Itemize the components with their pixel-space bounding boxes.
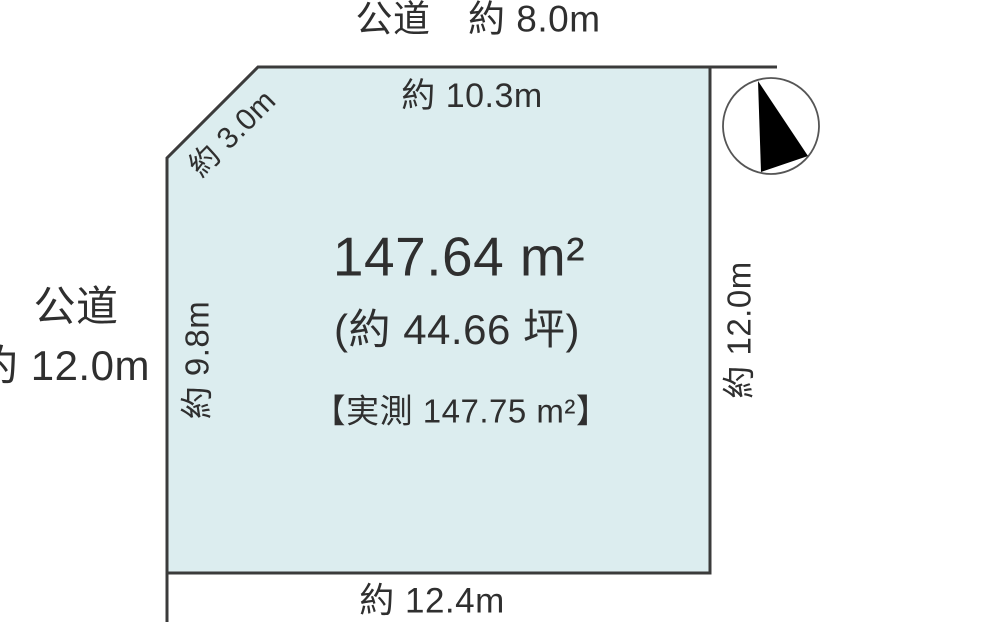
north-arrow-icon bbox=[723, 78, 819, 174]
left-road-dimension: 約 12.0m bbox=[0, 345, 150, 387]
top-edge-dimension: 約 10.3m bbox=[401, 79, 542, 113]
land-plot-diagram: 公道 約 8.0m 約 10.3m 約 3.0m 約 9.8m 約 12.0m … bbox=[0, 0, 1000, 631]
left-road-label: 公道 bbox=[33, 286, 118, 328]
bottom-edge-dimension: 約 12.4m bbox=[359, 584, 505, 619]
top-road-label: 公道 約 8.0m bbox=[355, 1, 600, 38]
area-tsubo-value: (約 44.66 坪) bbox=[334, 309, 580, 351]
area-value: 147.64 m² bbox=[333, 230, 585, 285]
right-edge-dimension: 約 12.0m bbox=[723, 261, 756, 398]
area-measured-value: 【実測 147.75 m²】 bbox=[313, 395, 610, 428]
left-edge-dimension: 約 9.8m bbox=[181, 301, 214, 420]
